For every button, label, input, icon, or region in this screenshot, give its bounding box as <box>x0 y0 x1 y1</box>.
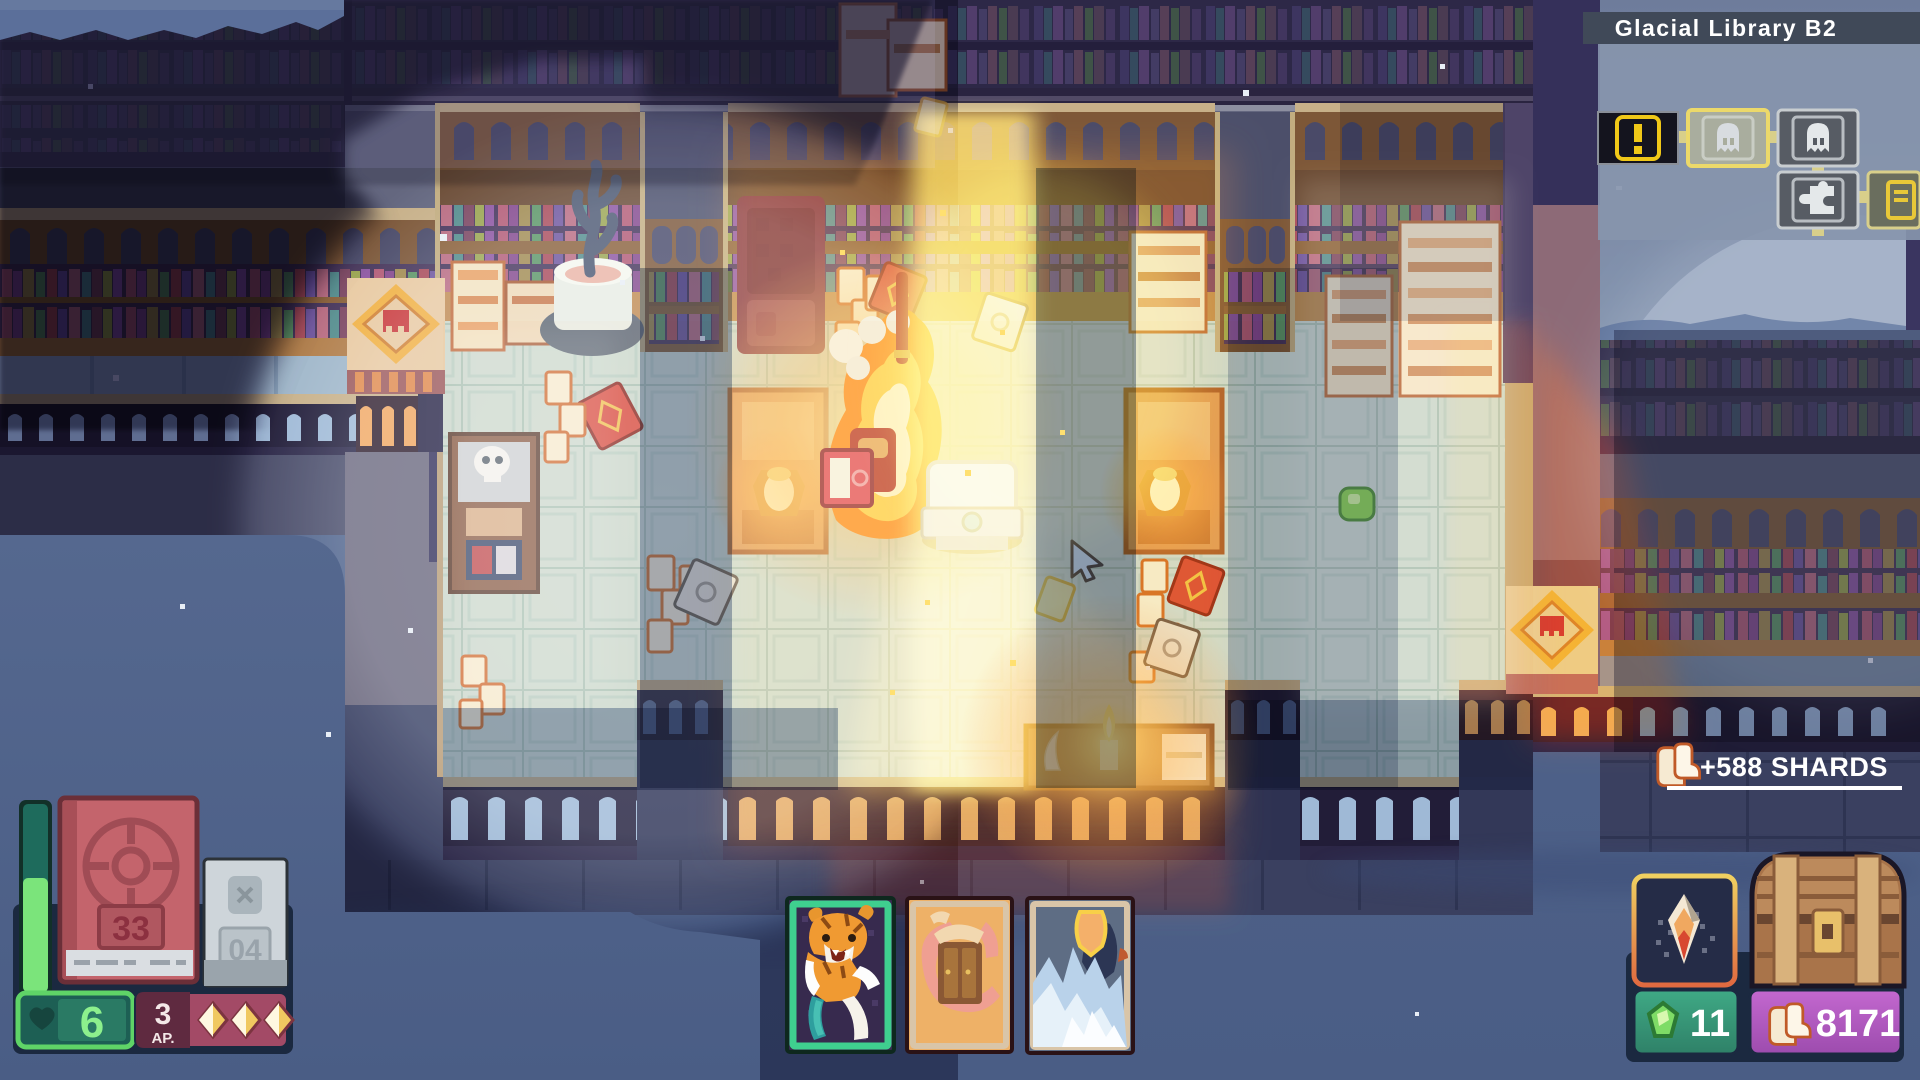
svg-text:AP.: AP. <box>151 1030 174 1047</box>
svg-text:6: 6 <box>80 998 104 1047</box>
svg-text:Glacial Library B2: Glacial Library B2 <box>1615 15 1838 41</box>
svg-text:3: 3 <box>155 998 172 1031</box>
svg-text:33: 33 <box>112 910 150 948</box>
svg-text:8171: 8171 <box>1816 1003 1901 1045</box>
svg-text:11: 11 <box>1690 1003 1730 1045</box>
svg-text:+588 SHARDS: +588 SHARDS <box>1700 752 1888 782</box>
